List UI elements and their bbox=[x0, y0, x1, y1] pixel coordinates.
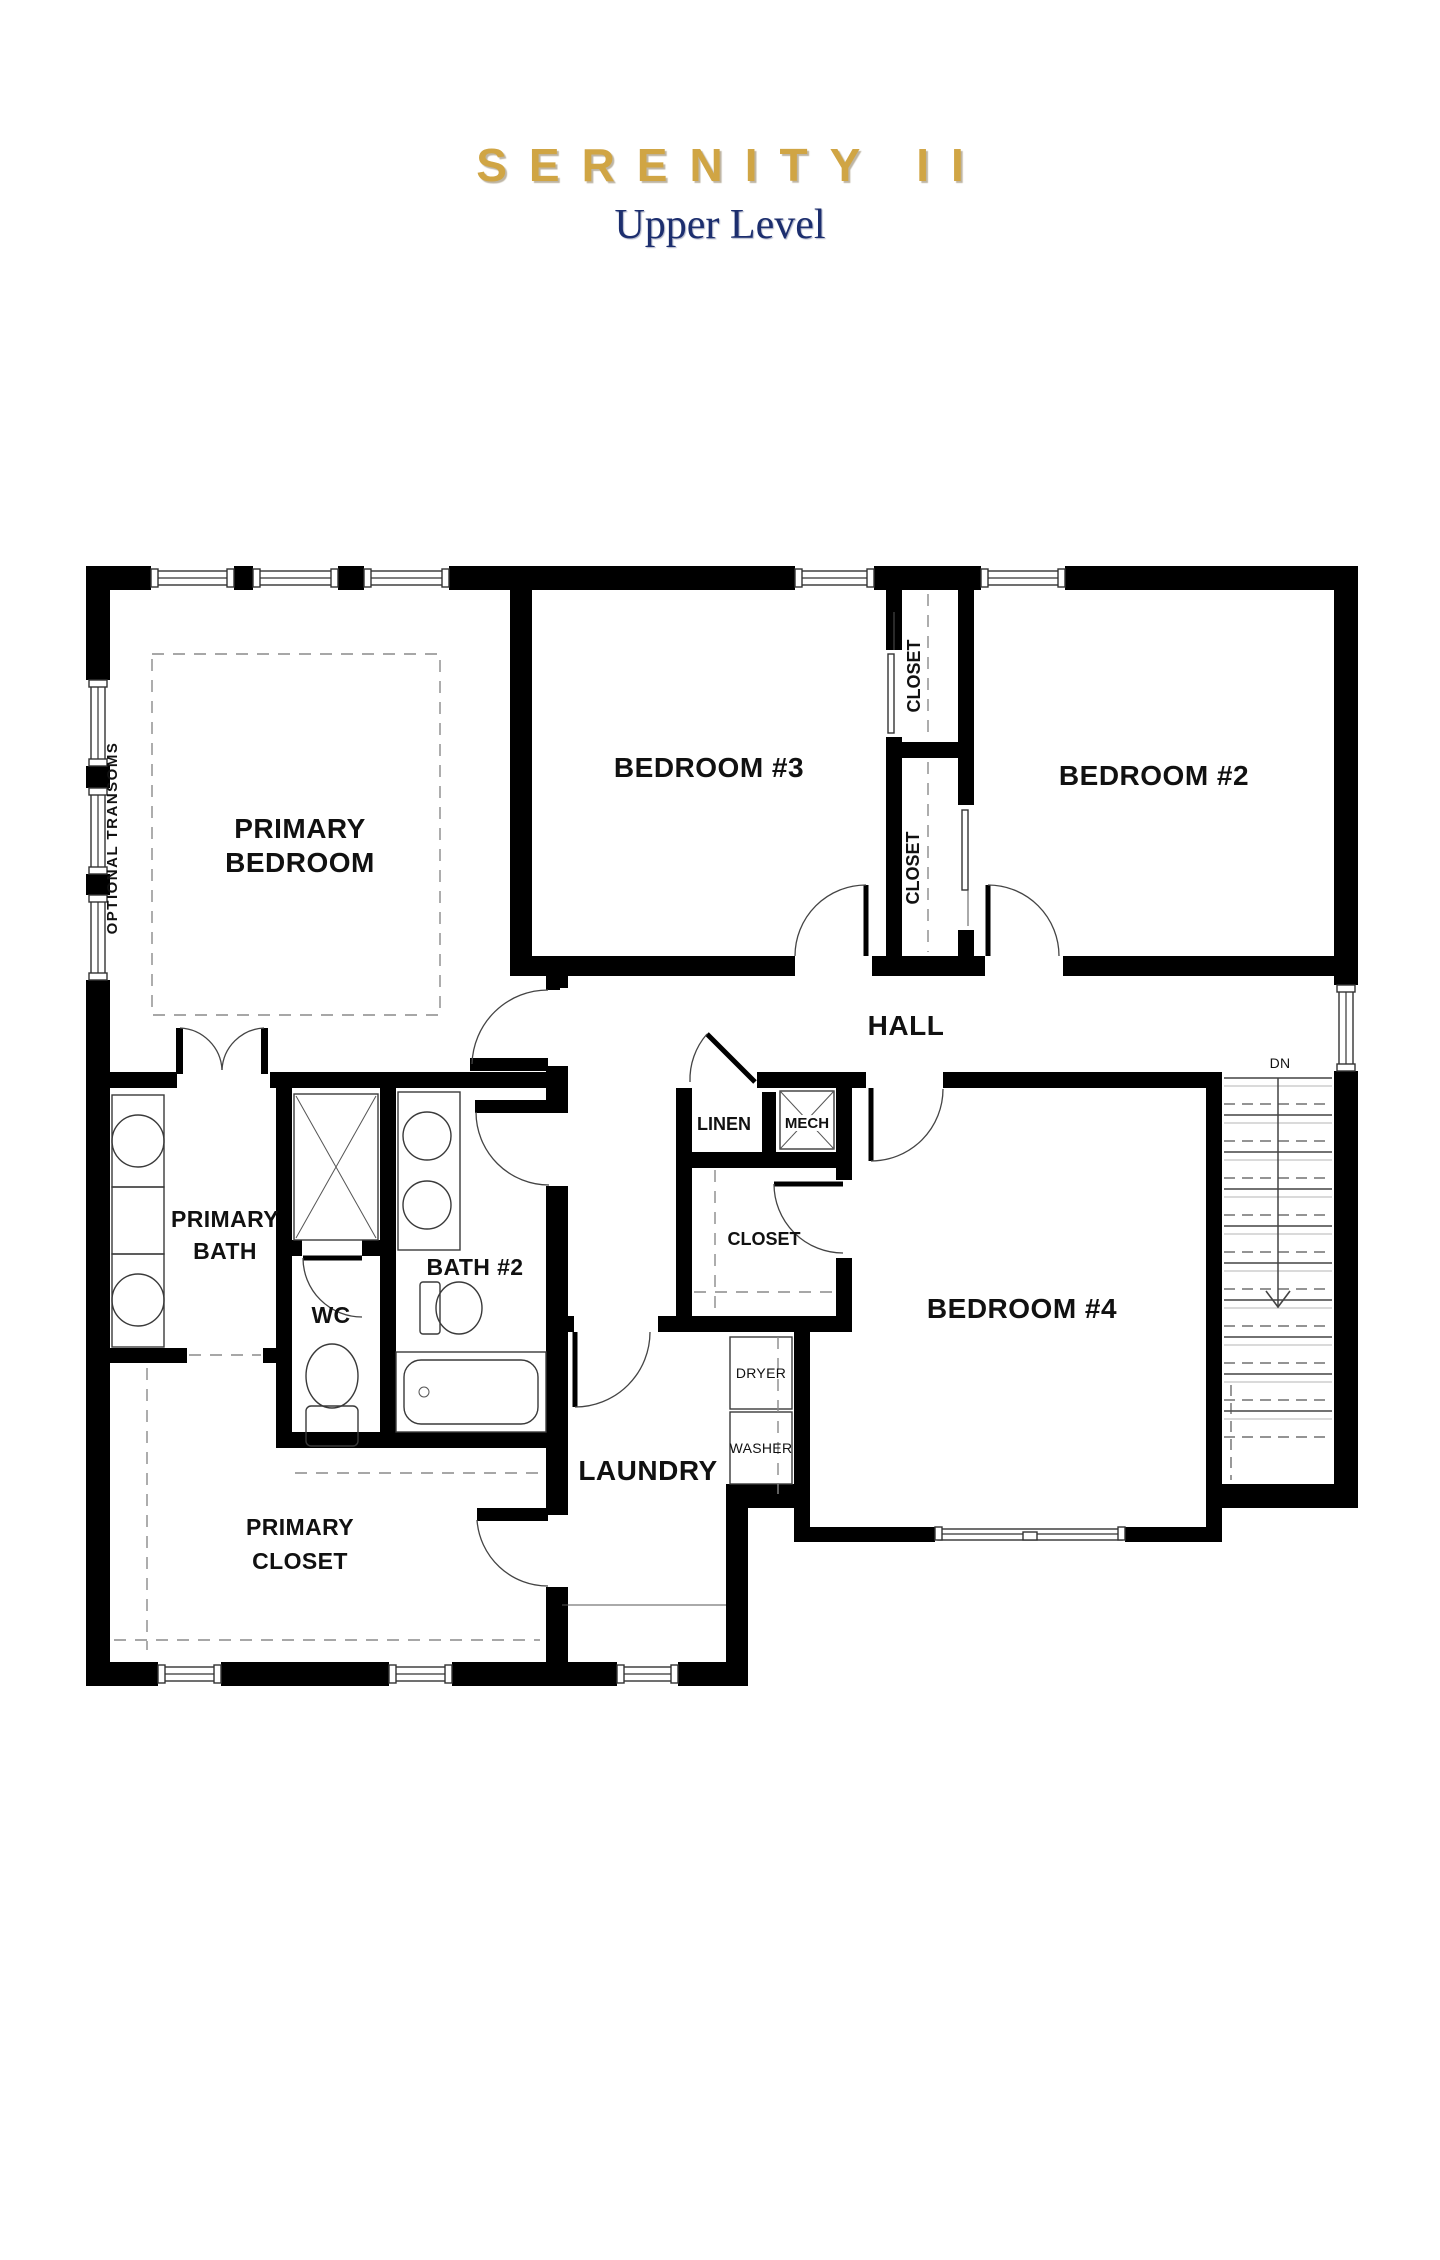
laundry-door bbox=[575, 1332, 650, 1407]
sink bbox=[403, 1112, 451, 1160]
mech-label: MECH bbox=[785, 1115, 829, 1132]
bath-2-door bbox=[475, 1100, 549, 1185]
wc-toilet bbox=[306, 1344, 358, 1446]
primary-suite-door bbox=[470, 990, 548, 1071]
window bbox=[389, 1662, 452, 1686]
stairs bbox=[1224, 1078, 1332, 1480]
floor-plan: PRIMARY BEDROOM BEDROOM #3 BEDROOM #2 HA… bbox=[0, 0, 1440, 2260]
primary-bath-label-line1: PRIMARY bbox=[171, 1206, 279, 1232]
bath-2-vanity bbox=[398, 1092, 460, 1250]
washer-label: WASHER bbox=[730, 1440, 793, 1456]
primary-closet-door bbox=[477, 1508, 548, 1586]
laundry-label: LAUNDRY bbox=[578, 1455, 717, 1486]
window bbox=[1334, 985, 1358, 1071]
primary-closet-label-line1: PRIMARY bbox=[246, 1514, 354, 1540]
closet-bedroom-4-label: CLOSET bbox=[727, 1229, 800, 1249]
bedroom-4-door bbox=[871, 1088, 943, 1161]
dryer-label: DRYER bbox=[736, 1365, 786, 1381]
linen-label: LINEN bbox=[697, 1114, 751, 1134]
window bbox=[617, 1662, 678, 1686]
bedroom-3-door bbox=[795, 885, 866, 956]
optional-transoms-note: OPTIONAL TRANSOMS bbox=[104, 742, 121, 935]
stairs-down-arrow bbox=[1266, 1078, 1290, 1307]
closet-bedroom-2-label: CLOSET bbox=[903, 831, 923, 904]
shower bbox=[294, 1094, 378, 1240]
window bbox=[151, 566, 234, 590]
primary-bedroom-label-line2: BEDROOM bbox=[225, 847, 375, 878]
bedroom-2-label: BEDROOM #2 bbox=[1059, 760, 1249, 791]
primary-bedroom-label-line1: PRIMARY bbox=[234, 813, 366, 844]
sink bbox=[112, 1115, 164, 1167]
window bbox=[158, 1662, 221, 1686]
window bbox=[981, 566, 1065, 590]
hall-label: HALL bbox=[868, 1010, 945, 1041]
bath-2-toilet bbox=[420, 1282, 482, 1334]
bedroom-4-label: BEDROOM #4 bbox=[927, 1293, 1117, 1324]
bedroom-2-door bbox=[988, 885, 1059, 956]
window bbox=[364, 566, 449, 590]
wc-label: WC bbox=[311, 1302, 350, 1328]
sink bbox=[112, 1274, 164, 1326]
window bbox=[935, 1527, 1125, 1542]
closet-bedroom-3-label: CLOSET bbox=[904, 639, 924, 712]
bedroom-3-label: BEDROOM #3 bbox=[614, 752, 804, 783]
bath-2-label: BATH #2 bbox=[427, 1254, 524, 1280]
sink bbox=[403, 1181, 451, 1229]
window bbox=[795, 566, 874, 590]
linen-door bbox=[690, 1034, 755, 1082]
page-title: SERENITY II bbox=[0, 140, 1440, 191]
primary-closet-label-line2: CLOSET bbox=[252, 1548, 348, 1574]
primary-bath-double-door bbox=[176, 1028, 268, 1074]
title-block: SERENITY II Upper Level bbox=[0, 0, 1440, 249]
fixtures bbox=[112, 1091, 834, 1605]
primary-bath-vanity bbox=[112, 1095, 164, 1347]
primary-bath-label-line2: BATH bbox=[193, 1238, 257, 1264]
bath-2-tub bbox=[396, 1352, 546, 1432]
stairs-dn-label: DN bbox=[1270, 1055, 1291, 1071]
page-subtitle: Upper Level bbox=[0, 201, 1440, 249]
window bbox=[253, 566, 338, 590]
